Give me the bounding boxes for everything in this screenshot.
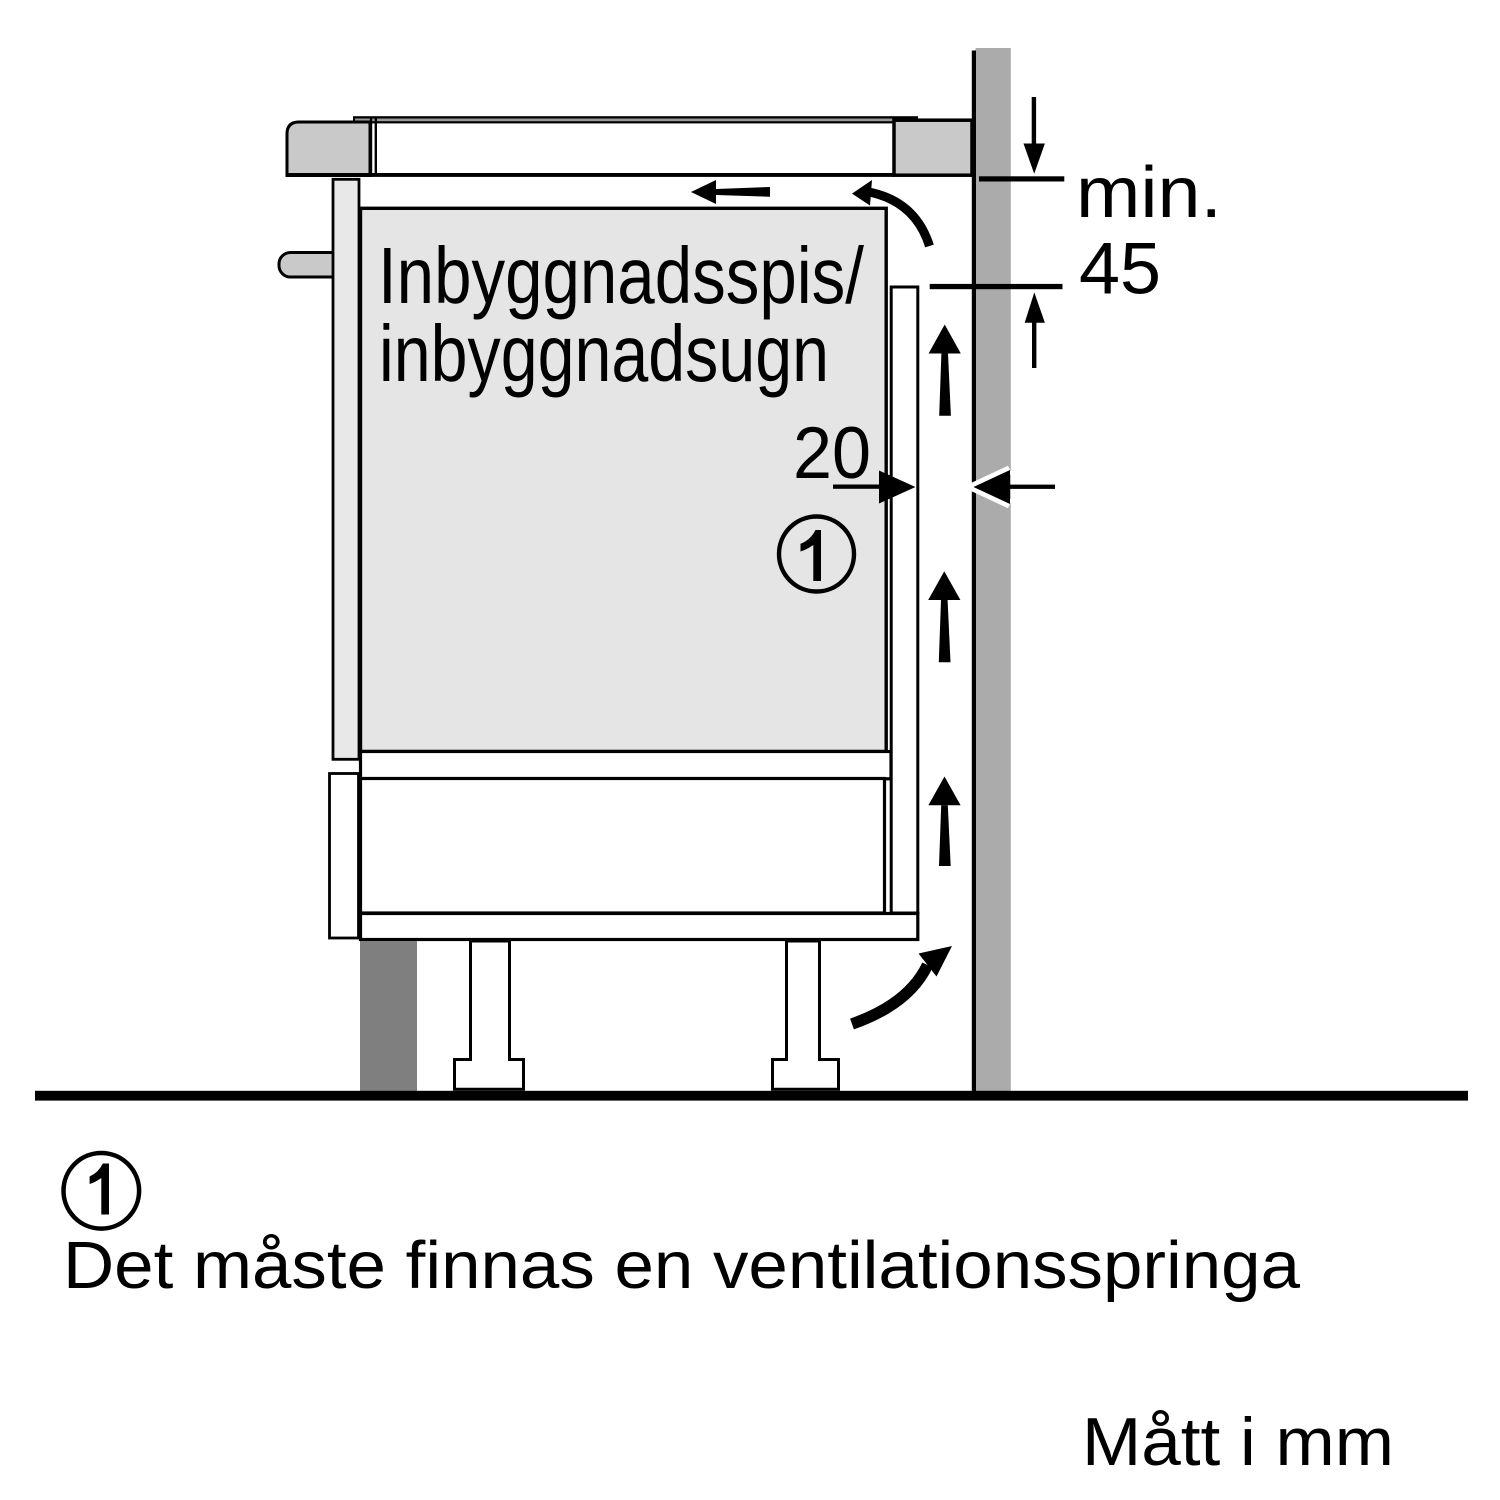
svg-text:inbyggnadsugn: inbyggnadsugn xyxy=(379,309,829,398)
svg-text:Mått i mm: Mått i mm xyxy=(1082,1404,1394,1480)
svg-text:45: 45 xyxy=(1079,229,1161,310)
svg-text:20: 20 xyxy=(793,413,871,494)
svg-text:Det måste finnas en ventilatio: Det måste finnas en ventilationsspringa xyxy=(63,1228,1301,1303)
svg-text:Inbyggnadsspis/: Inbyggnadsspis/ xyxy=(378,231,865,320)
svg-text:min.: min. xyxy=(1076,153,1222,233)
